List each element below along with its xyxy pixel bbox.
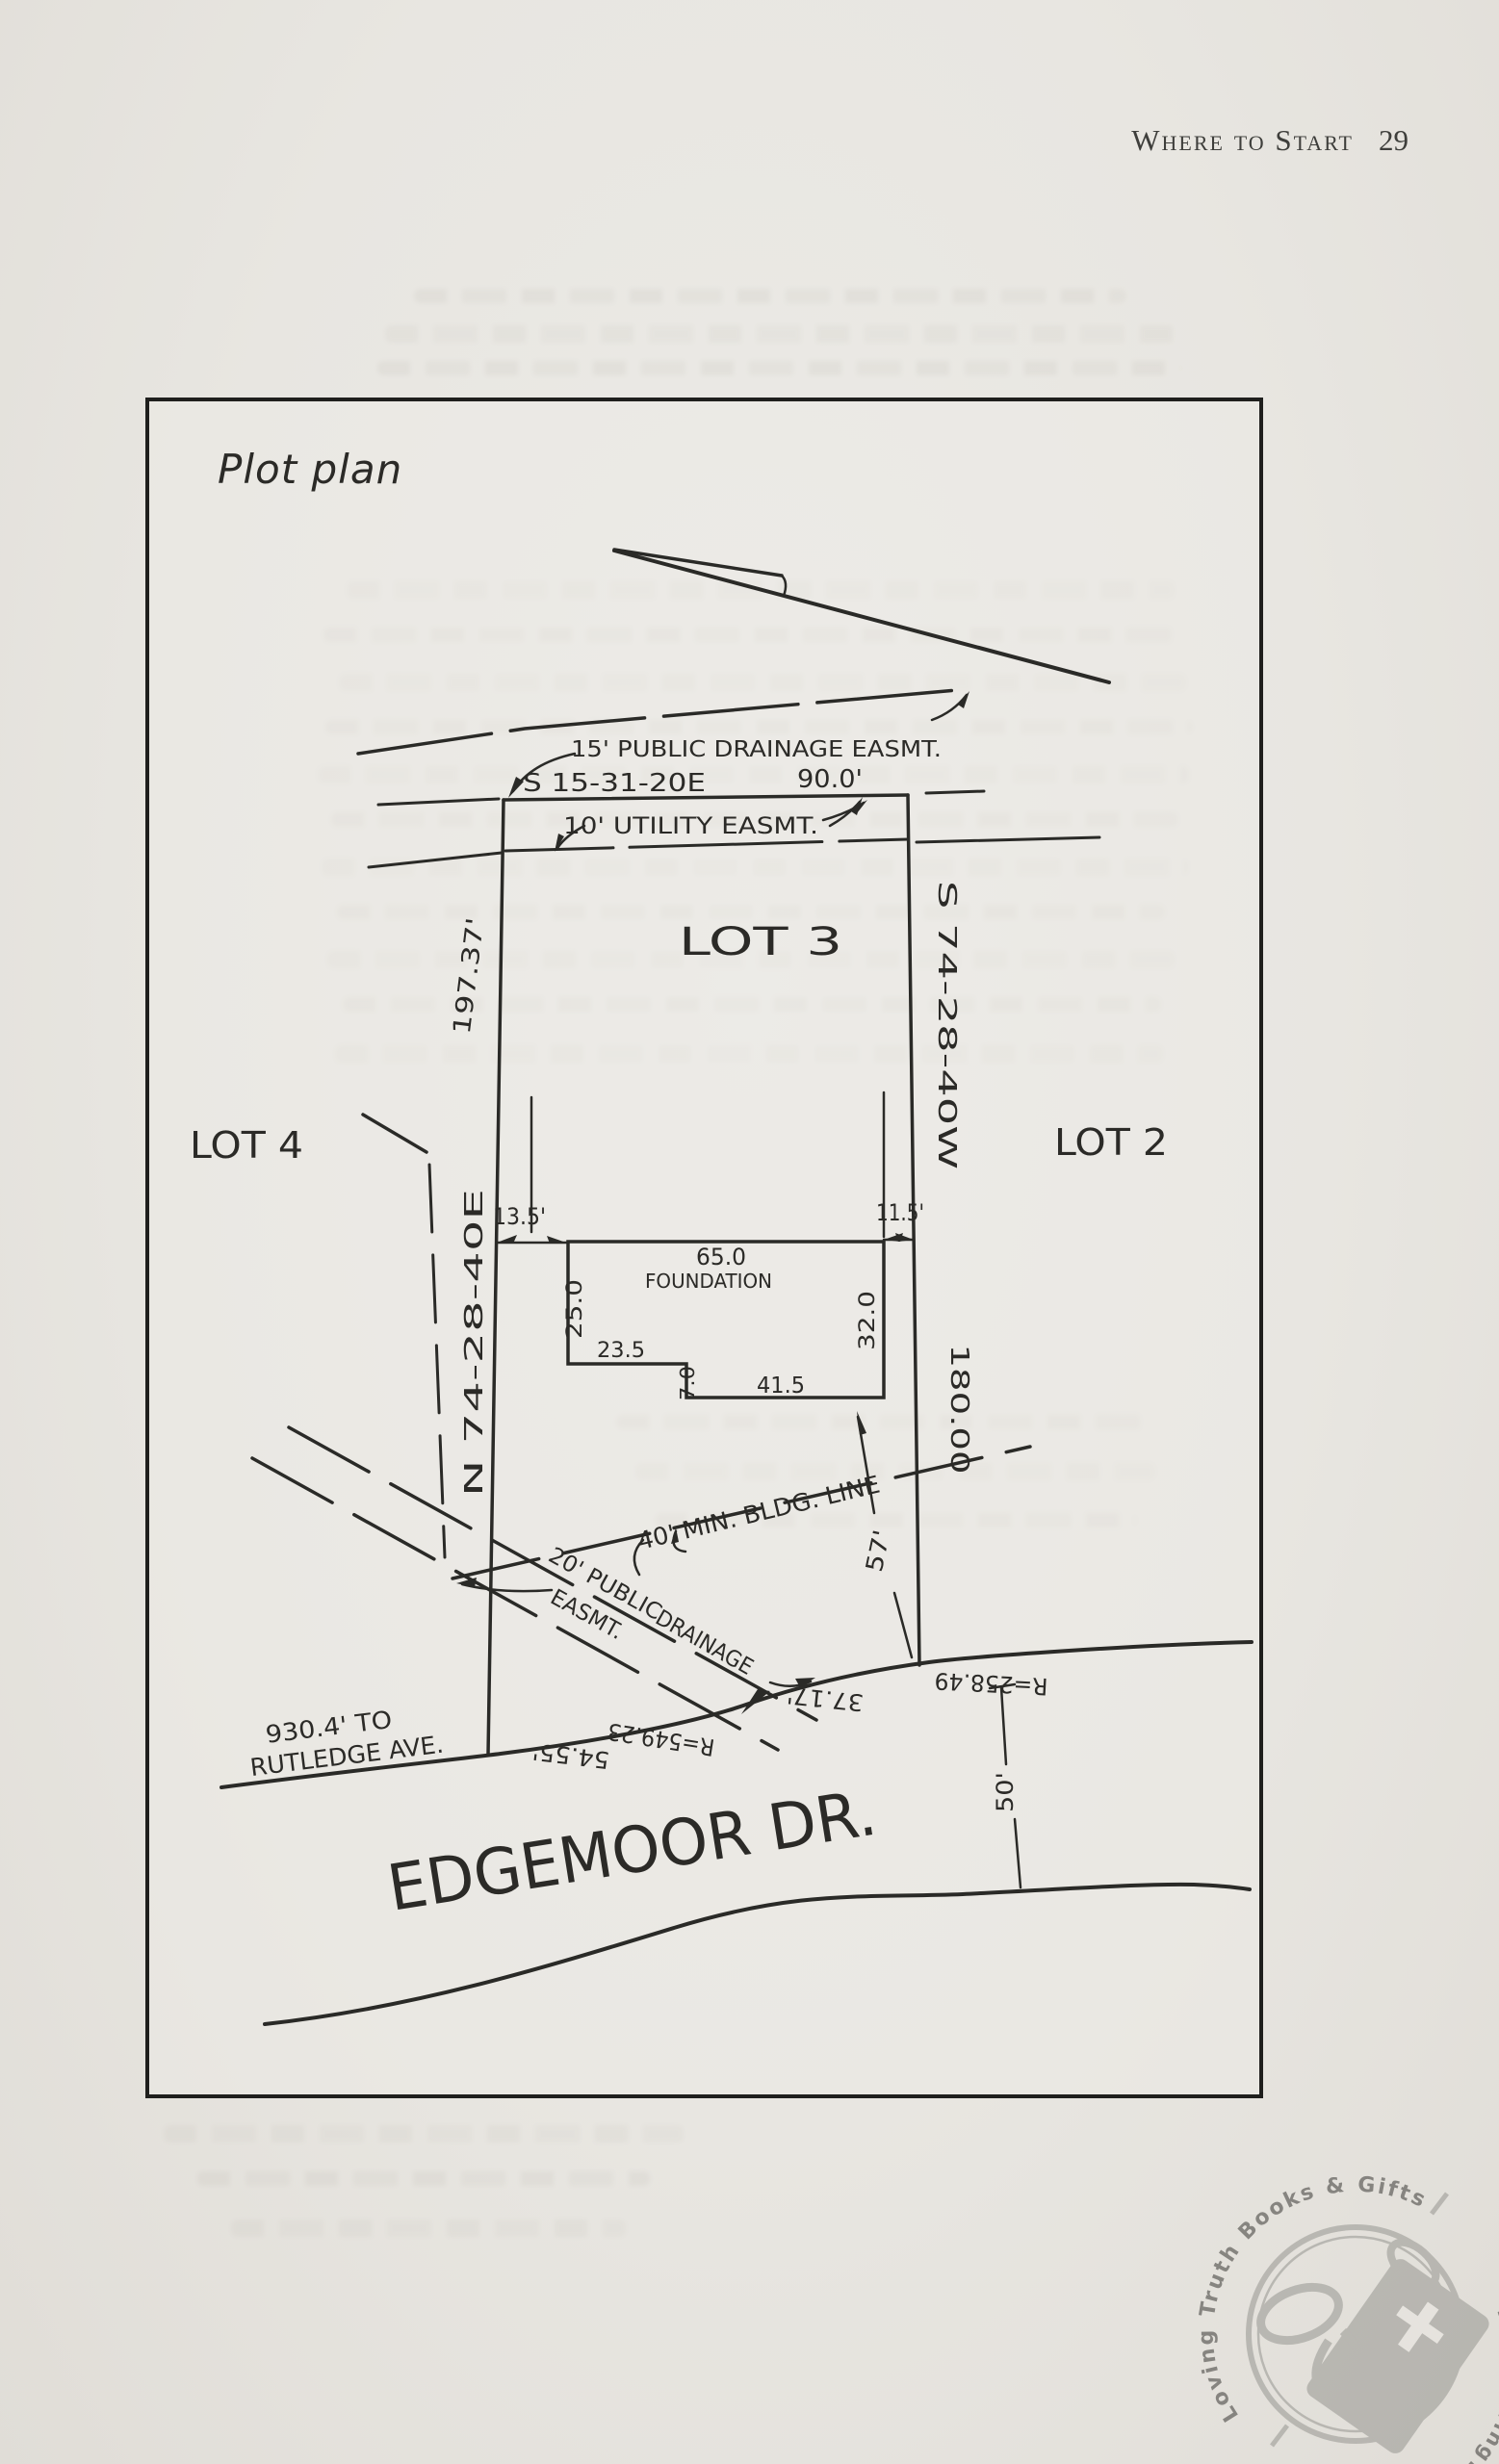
west-bearing-label: N 74-28-40E [460, 1189, 489, 1497]
foundation-label: FOUNDATION [645, 1270, 772, 1293]
foundation-step-dim: 23.5 [597, 1339, 645, 1363]
setback-east-label: 11.5' [876, 1199, 924, 1226]
setback-west-label: 13.5' [493, 1203, 546, 1230]
north-length-label: 90.0' [797, 765, 863, 794]
east-length-label: 180.00 [944, 1345, 973, 1475]
figure-title: Plot plan [218, 446, 402, 493]
right-of-way-label: 50' [992, 1772, 1019, 1812]
east-bearing-label: S 74-28-40W [932, 881, 961, 1169]
foundation-notch-dim: 7.0 [676, 1366, 699, 1400]
scanned-book-page: { "page": { "header": { "title": "Where … [0, 0, 1499, 2464]
foundation-bottom-dim: 41.5 [757, 1373, 805, 1399]
foundation-top-dim: 65.0 [696, 1244, 746, 1270]
north-bearing-label: S 15-31-20E [523, 769, 706, 798]
lot4-label: LOT 4 [190, 1124, 303, 1167]
foundation-west-dim: 25.0 [563, 1279, 587, 1339]
foundation-east-dim: 32.0 [856, 1291, 880, 1350]
watermark-stamp: Loving Truth Books & Gifts www.LovingTru… [1195, 2172, 1499, 2464]
plot-plan-figure: Plot plan [0, 0, 1499, 2464]
stamp-divider-bottom [1272, 2425, 1287, 2446]
utility-easement-label: 10' UTILITY EASMT. [563, 812, 818, 839]
book-with-cross-icon [1304, 2255, 1493, 2457]
lot2-label: LOT 2 [1054, 1121, 1168, 1164]
lot3-label: LOT 3 [679, 920, 842, 964]
easement-15-label: 15' PUBLIC DRAINAGE EASMT. [571, 737, 942, 762]
stamp-divider-top [1432, 2194, 1447, 2214]
